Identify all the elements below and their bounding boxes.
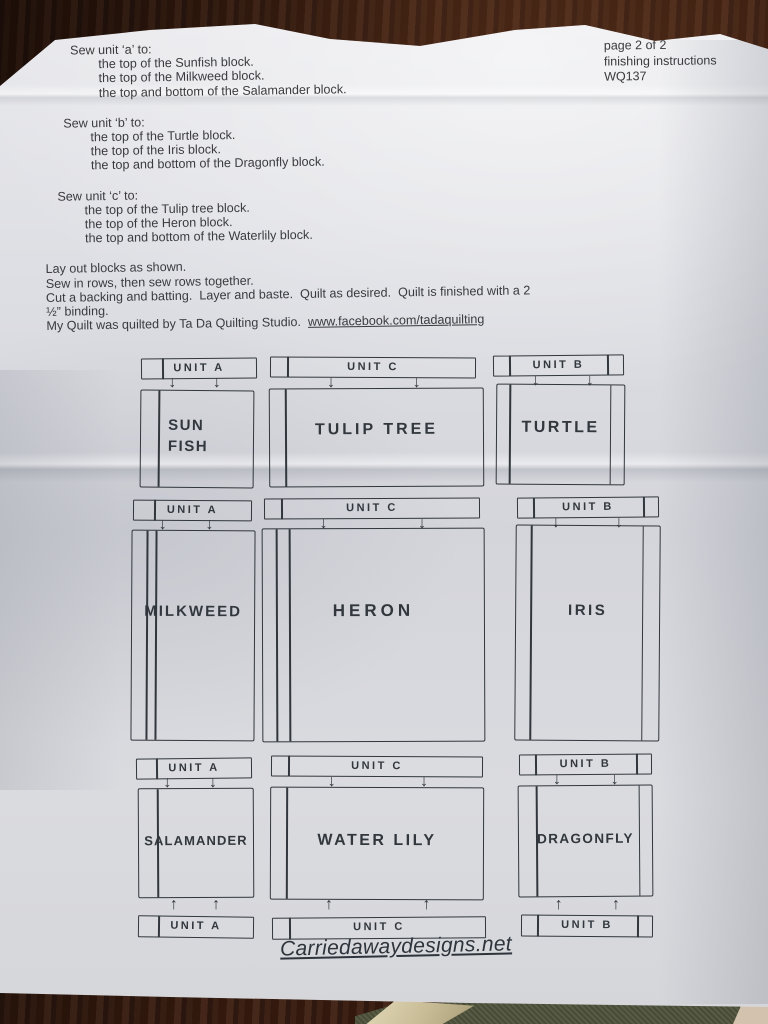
sashing-line (509, 385, 511, 484)
quilt-layout-diagram: UNIT A UNIT C UNIT B ↓ ↓ ↓ ↓ ↓ ↓ (0, 0, 768, 1024)
strip-divider (281, 498, 283, 519)
strip-divider (288, 756, 290, 777)
block-label: WATER LILY (317, 831, 436, 855)
sashing-line (638, 786, 640, 896)
strip-divider (637, 915, 639, 937)
up-arrow-icon: ↑ (612, 896, 620, 913)
block-waterlily: WATER LILY (270, 787, 484, 901)
block-label: TULIP TREE (315, 420, 438, 455)
sashing-line (609, 385, 611, 484)
block-heron: HERON (262, 528, 486, 743)
seam-arrows-up: ↑ ↑ (521, 899, 651, 916)
strip-divider (154, 500, 156, 521)
up-arrow-icon: ↑ (325, 896, 333, 913)
unit-b-strip-row1: UNIT B (493, 354, 624, 376)
unit-label: UNIT C (265, 498, 479, 517)
block-tulip-tree: TULIP TREE (269, 387, 485, 487)
sashing-line (289, 529, 291, 741)
up-arrow-icon: ↑ (212, 896, 220, 913)
unit-b-strip-row3: UNIT B (519, 754, 652, 776)
block-milkweed: MILKWEED (130, 530, 255, 742)
unit-label: UNIT A (139, 916, 253, 935)
down-arrow-icon: ↓ (213, 374, 221, 391)
strip-divider (289, 918, 291, 940)
strip-divider (509, 356, 511, 377)
unit-c-strip-row2: UNIT C (264, 497, 480, 519)
sashing-line (157, 789, 159, 897)
block-iris: IRIS (514, 524, 661, 741)
unit-label: UNIT C (272, 756, 482, 775)
block-dragonfly: DRAGONFLY (518, 785, 654, 898)
strip-divider (535, 754, 537, 775)
unit-a-strip-bottom: UNIT A (138, 915, 254, 938)
unit-label: UNIT B (522, 916, 652, 935)
strip-divider (287, 357, 289, 378)
block-label: MILKWEED (144, 603, 242, 669)
unit-label: UNIT B (494, 355, 623, 374)
block-label: SALAMANDER (144, 832, 248, 854)
unit-label: UNIT A (142, 359, 256, 378)
sashing-line (276, 529, 278, 741)
block-turtle: TURTLE (496, 384, 626, 486)
up-arrow-icon: ↑ (555, 896, 563, 913)
unit-b-strip-bottom: UNIT B (521, 915, 653, 938)
seam-arrows-up: ↑ ↑ (272, 899, 484, 916)
unit-label: UNIT B (520, 755, 651, 774)
strip-divider (643, 497, 645, 518)
block-label: TURTLE (521, 418, 599, 451)
up-arrow-icon: ↑ (170, 896, 178, 913)
unit-label: UNIT B (518, 497, 658, 516)
block-label: HERON (333, 601, 415, 669)
unit-b-strip-row2: UNIT B (517, 496, 659, 518)
unit-c-strip-row1: UNIT C (270, 356, 476, 378)
strip-divider (533, 497, 535, 518)
unit-label: UNIT C (271, 357, 475, 376)
sashing-line (529, 526, 532, 740)
block-sunfish: SUN FISH (140, 390, 255, 489)
strip-divider (636, 754, 638, 775)
photo-scene: page 2 of 2 finishing instructions WQ137… (0, 0, 768, 1024)
block-label: SUN FISH (141, 391, 209, 458)
sashing-line (641, 526, 644, 740)
strip-divider (537, 915, 539, 937)
up-arrow-icon: ↑ (423, 896, 431, 913)
unit-label: UNIT A (134, 501, 251, 520)
sashing-line (285, 389, 287, 486)
instruction-sheet: page 2 of 2 finishing instructions WQ137… (0, 0, 768, 1024)
block-label: IRIS (568, 601, 608, 664)
strip-divider (607, 354, 609, 375)
unit-label: UNIT A (137, 758, 251, 777)
sashing-line (286, 788, 288, 899)
block-label: DRAGONFLY (537, 830, 634, 852)
block-salamander: SALAMANDER (138, 788, 255, 899)
unit-c-strip-row3: UNIT C (271, 755, 483, 777)
down-arrow-icon: ↓ (168, 374, 176, 391)
strip-divider (158, 916, 160, 938)
seam-arrows-up: ↑ ↑ (138, 899, 252, 916)
